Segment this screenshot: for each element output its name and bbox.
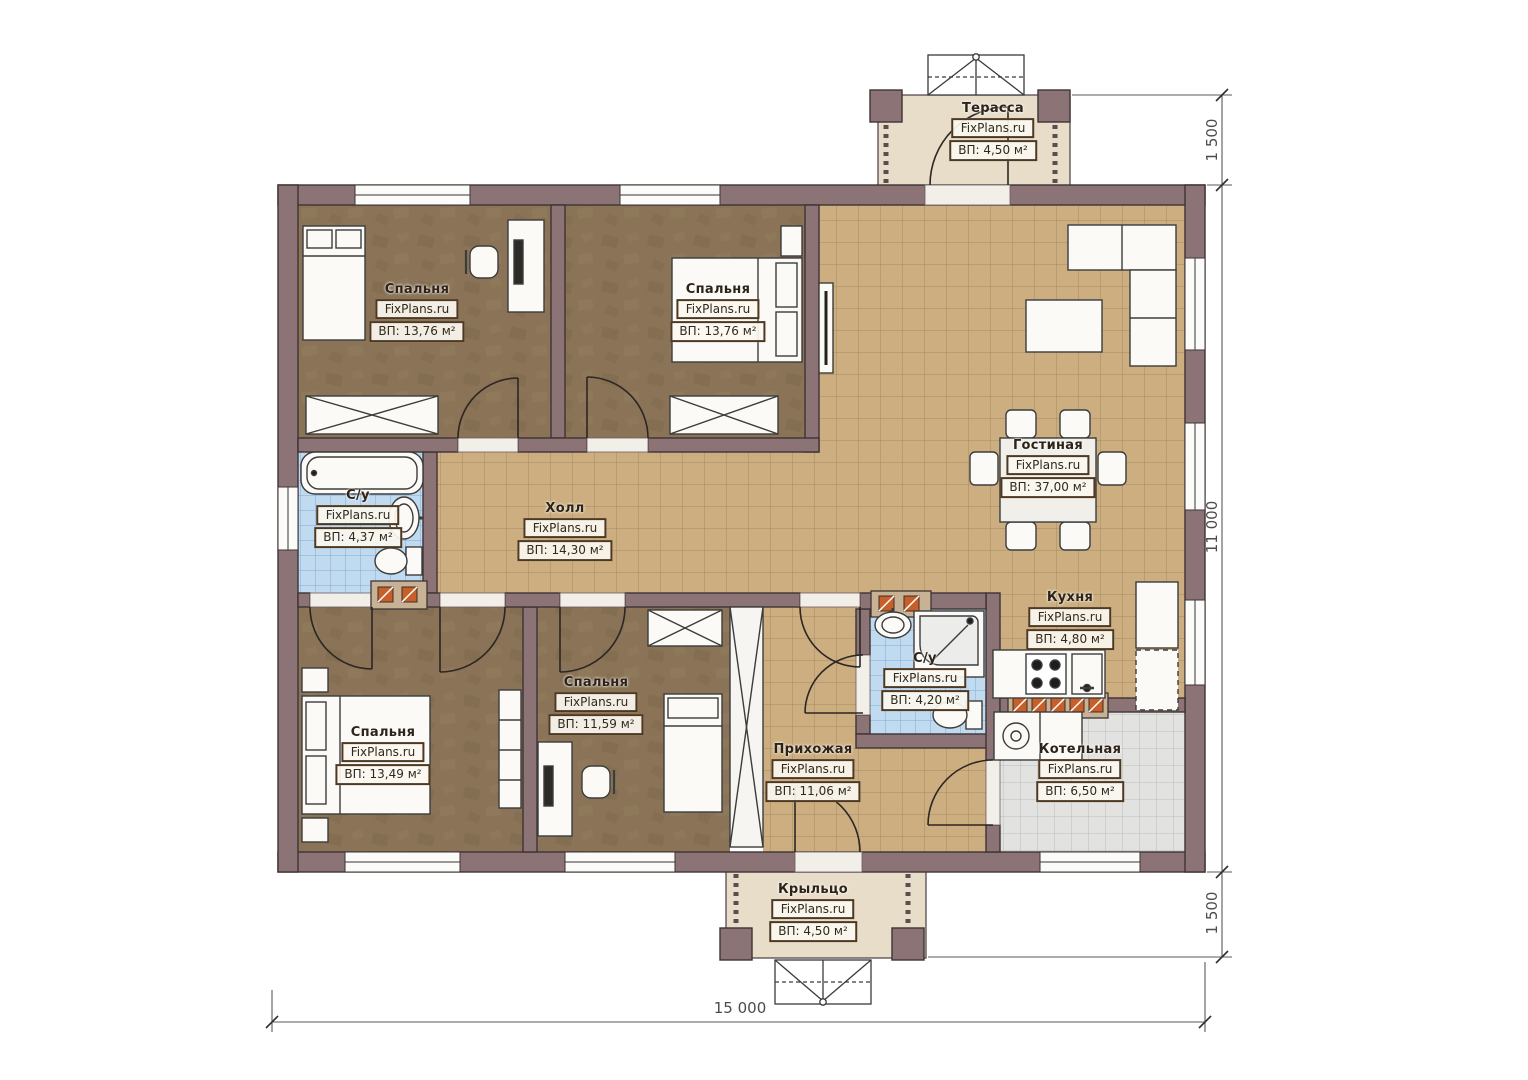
threshold-bath2	[856, 655, 870, 715]
window-bed3-bottom	[345, 852, 460, 872]
threshold-porch	[795, 852, 862, 872]
floor-plan-page: Терасса FixPlans.ru ВП: 4,50 м² Спальня …	[0, 0, 1528, 1080]
threshold-terrace	[925, 185, 1010, 205]
wall-bed1-hall-a	[298, 438, 458, 452]
window-boiler-bottom	[1040, 852, 1140, 872]
shelf-bedroom-2	[781, 226, 802, 256]
porch-canopy	[775, 960, 871, 1005]
porch-pillar-left	[720, 928, 752, 960]
hall-floor	[437, 452, 819, 593]
terrace-pillar-right	[1038, 90, 1070, 122]
threshold-bed4	[560, 593, 625, 607]
dim-house-depth: 11 000	[1203, 501, 1221, 554]
terrace-canopy	[928, 54, 1024, 95]
threshold-entry-hall	[800, 593, 860, 607]
toilet-bathroom-2	[933, 701, 982, 729]
bed-bedroom-4	[664, 694, 722, 812]
shelf-bedroom-3	[499, 690, 521, 808]
vent-bath1	[371, 581, 427, 609]
wardrobe-bedroom-2	[670, 396, 778, 434]
wall-bath2-left-a	[856, 609, 870, 655]
porch-pillar-right	[892, 928, 924, 960]
wall-bath2-left-b	[856, 715, 870, 734]
nightstand-bedroom-3-bottom	[302, 818, 328, 842]
threshold-bath1	[310, 593, 372, 607]
threshold-boiler	[986, 760, 1000, 825]
window-right-3	[1185, 600, 1205, 685]
dim-porch-depth: 1 500	[1203, 892, 1221, 935]
wardrobe-bedroom-1	[306, 396, 438, 434]
wall-bed1-bed2	[551, 205, 565, 438]
wall-boiler-left-b	[986, 825, 1000, 852]
wall-bed2-hall	[648, 438, 819, 452]
dim-house-width: 15 000	[714, 999, 767, 1017]
wardrobe-bedroom-4	[648, 610, 722, 646]
bed-bedroom-3	[302, 696, 430, 814]
shower-bathroom-2	[914, 611, 984, 677]
threshold-bed3	[440, 593, 505, 607]
window-bed2-top	[620, 185, 720, 205]
wall-bath1-hall	[423, 452, 437, 593]
kitchen-tall-cabinets	[1136, 582, 1178, 710]
wall-bed2-living	[805, 205, 819, 452]
tv-unit	[819, 283, 833, 373]
bathtub	[301, 452, 423, 494]
toilet-bathroom-1	[375, 547, 422, 575]
bed-bedroom-2	[672, 258, 802, 362]
threshold-bed1	[458, 438, 518, 452]
boiler-counter	[994, 712, 1082, 760]
wall-bed3-bed4	[523, 607, 537, 852]
wall-h2-c	[505, 593, 560, 607]
window-bed4-bottom	[565, 852, 675, 872]
threshold-bed2	[587, 438, 648, 452]
terrace-pillar-left	[870, 90, 902, 122]
window-bath1-left	[278, 487, 298, 550]
coffee-table	[1026, 300, 1102, 352]
window-bed1-top	[355, 185, 470, 205]
kitchen-counter	[993, 650, 1105, 698]
wall-h2-a	[298, 593, 310, 607]
closet-entry-hall	[730, 607, 763, 847]
nightstand-bedroom-3-top	[302, 668, 328, 692]
dim-terrace-depth: 1 500	[1203, 119, 1221, 162]
window-right-2	[1185, 423, 1205, 510]
bed-bedroom-1	[303, 226, 365, 340]
window-right-1	[1185, 258, 1205, 350]
floor-plan-drawing	[0, 0, 1528, 1080]
wall-h2-d	[625, 593, 800, 607]
wall-bath2-bottom	[856, 734, 1000, 748]
wall-bed1-hall-b	[518, 438, 587, 452]
